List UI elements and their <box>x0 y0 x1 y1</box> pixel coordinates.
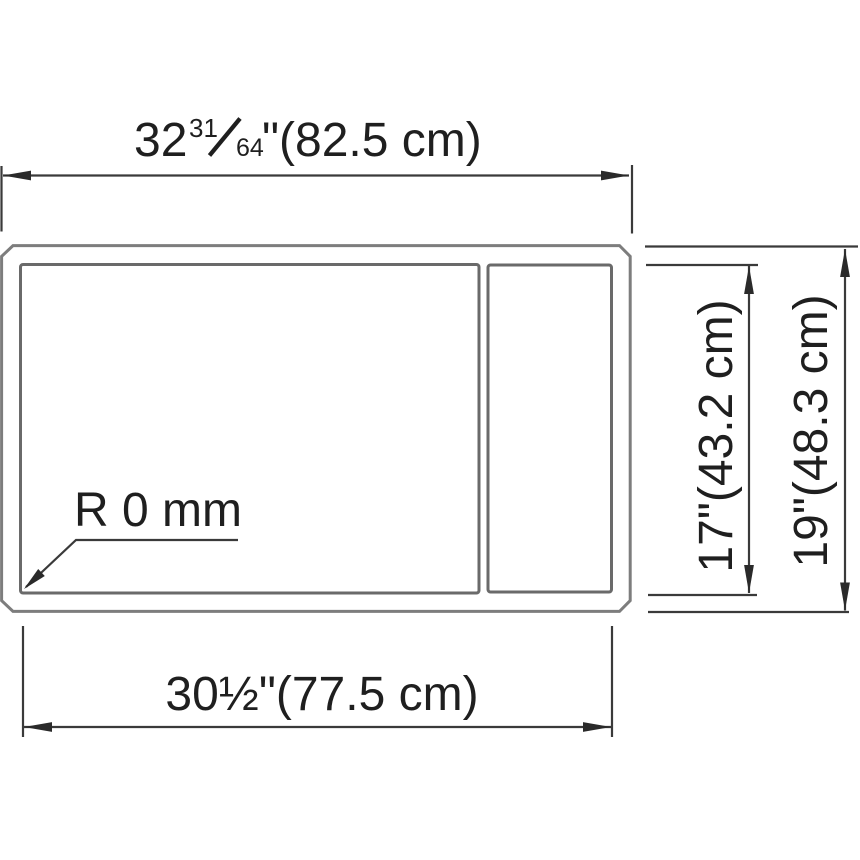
svg-text:R 0 mm: R 0 mm <box>74 484 242 537</box>
svg-text:64: 64 <box>236 134 264 162</box>
svg-text:31: 31 <box>189 113 218 143</box>
svg-text:19"(48.3 cm): 19"(48.3 cm) <box>785 294 838 567</box>
svg-text:32: 32 <box>134 114 187 167</box>
svg-text:30½"(77.5 cm): 30½"(77.5 cm) <box>165 668 478 721</box>
svg-text:17"(43.2 cm): 17"(43.2 cm) <box>690 299 743 572</box>
svg-text:"(82.5 cm): "(82.5 cm) <box>262 114 482 167</box>
